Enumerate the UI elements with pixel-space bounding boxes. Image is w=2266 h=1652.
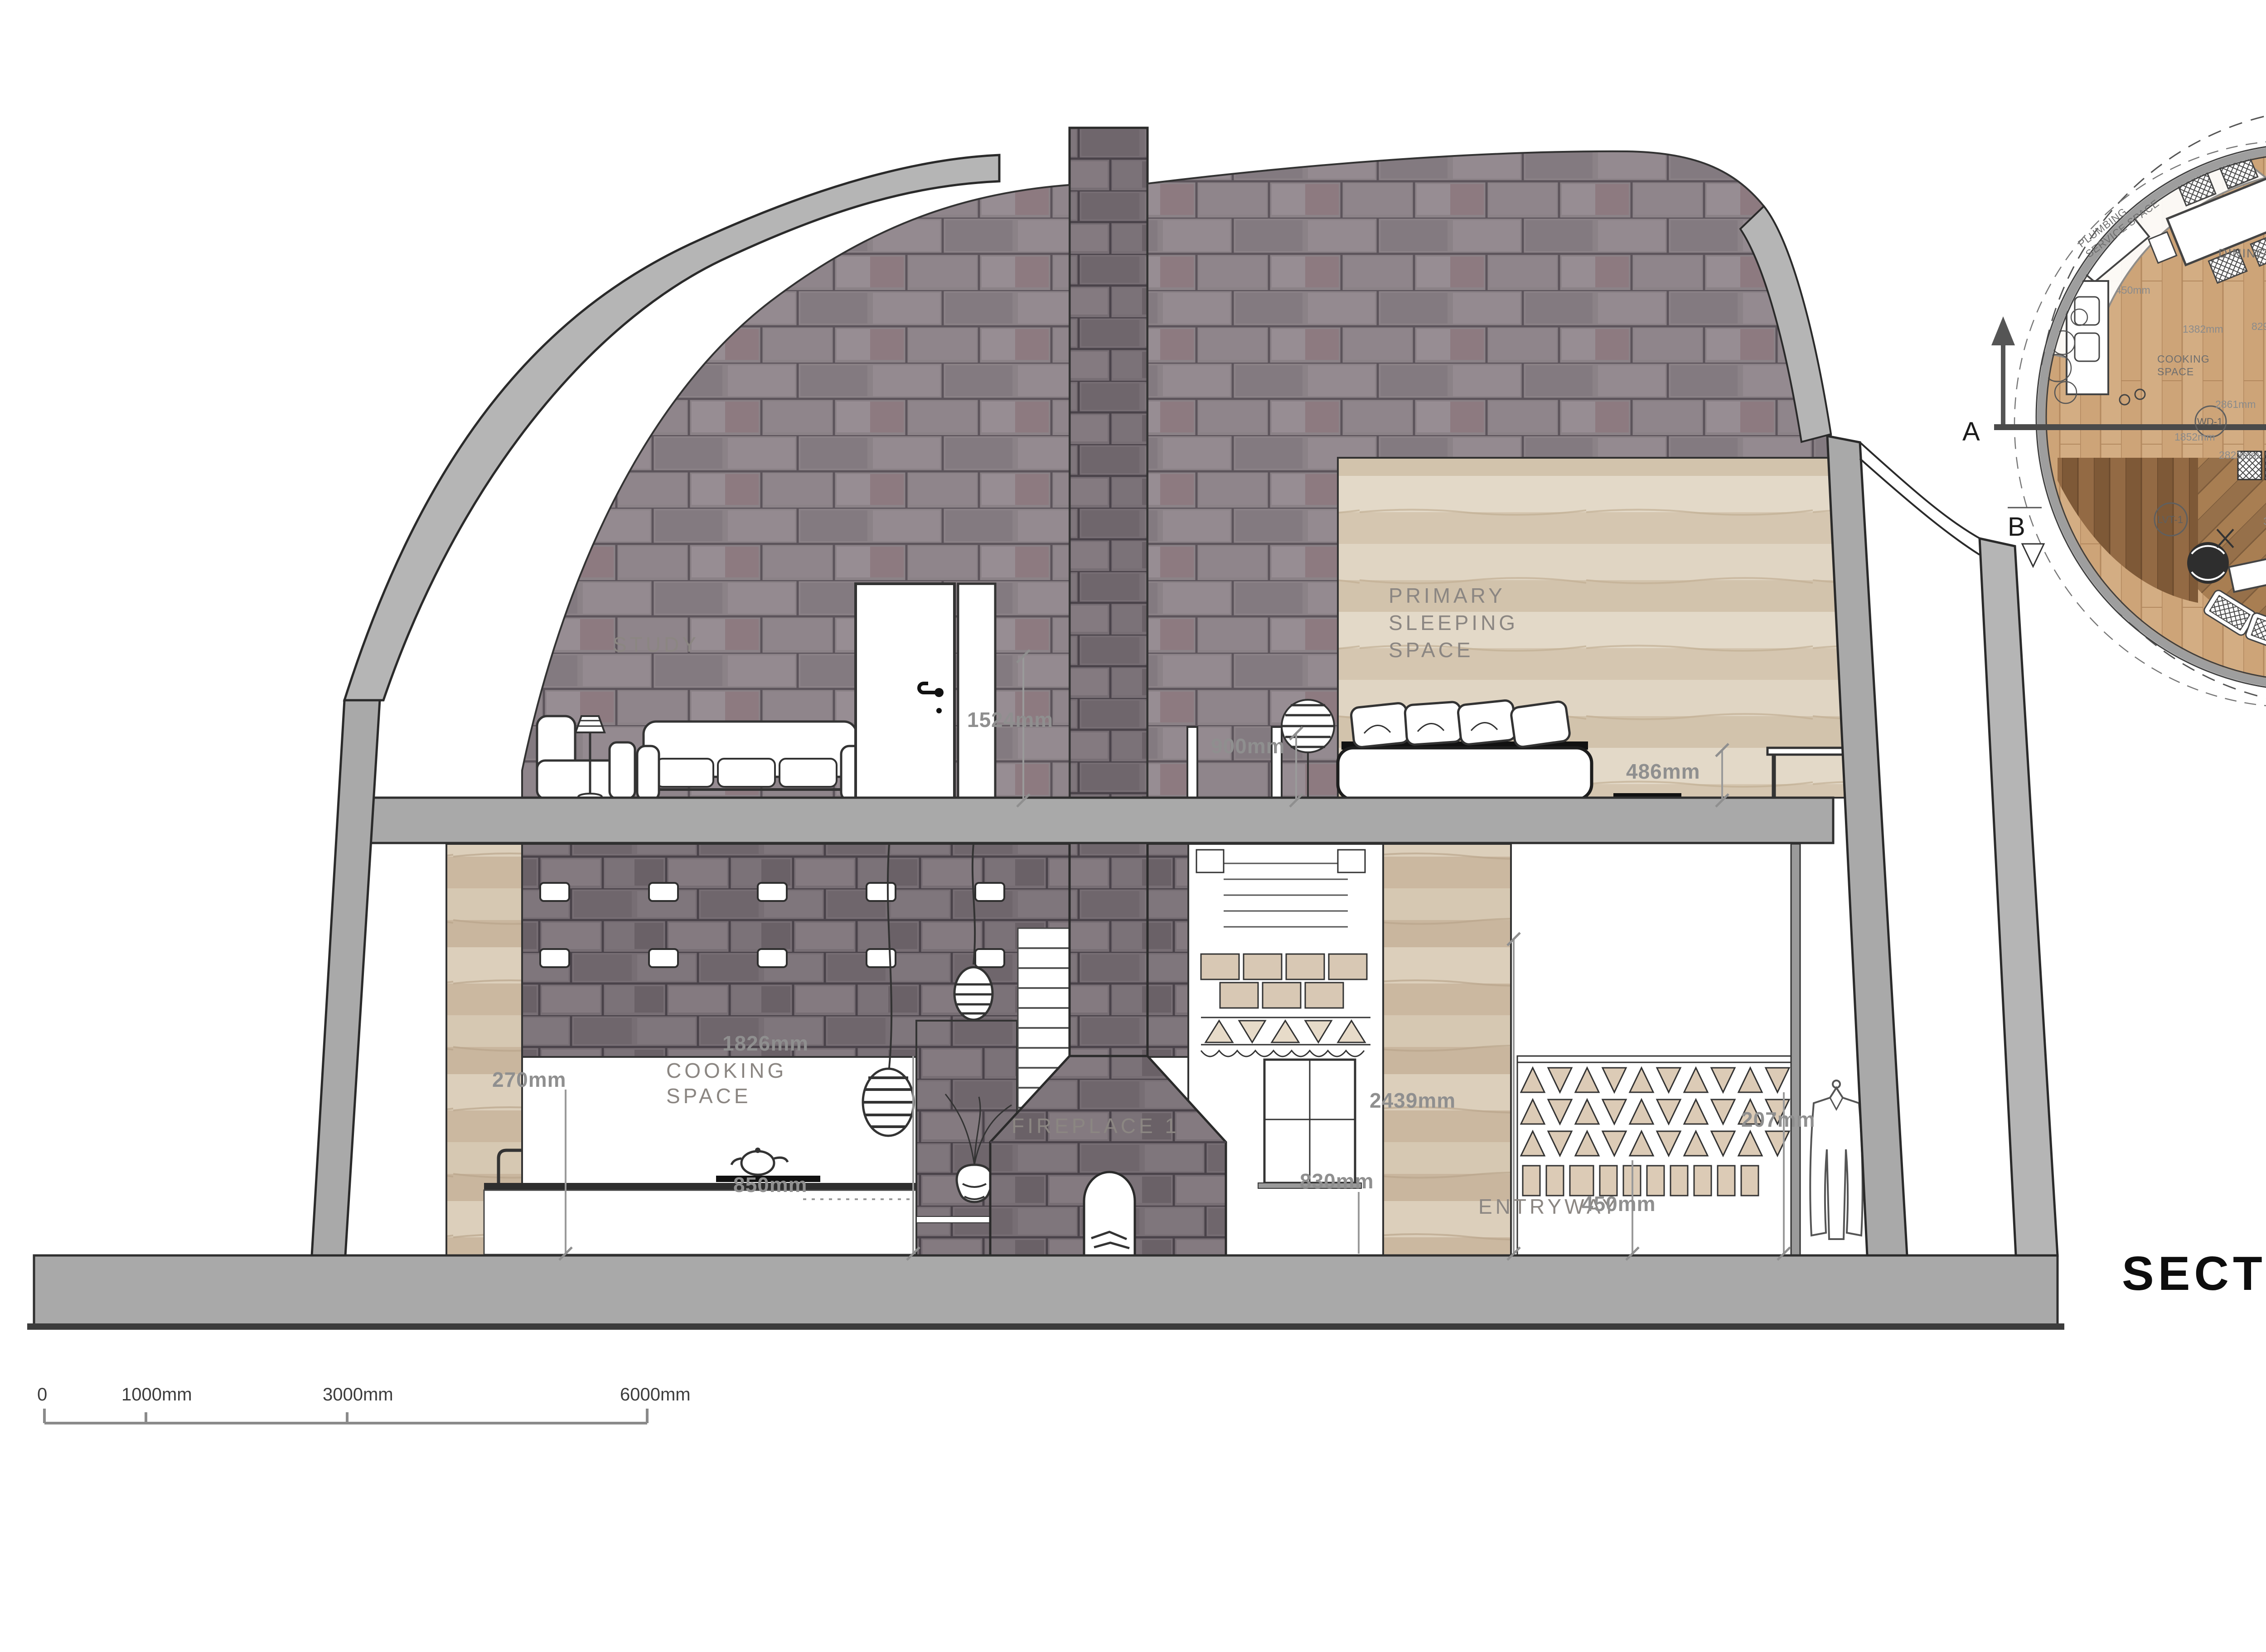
plan-interior: [2035, 135, 2266, 689]
sheet-title: SECTION: [2122, 1247, 2266, 1300]
blueprint-canvas: STUDY PRIMARY SLEEPING SPACE COOKING SPA…: [0, 0, 2266, 1652]
study-partition-wall: [958, 584, 995, 799]
scale-6000: 6000mm: [620, 1385, 691, 1405]
pdim-829: 829mm: [2251, 320, 2266, 332]
pdim-2823: 2823mm: [2219, 449, 2259, 461]
screen-slats: [1523, 1166, 1758, 1196]
plan-marker-b: B: [2008, 512, 2025, 542]
pdim-3443: 3443mm: [2263, 515, 2266, 527]
entry-roof-curve: [1860, 442, 1981, 555]
plan-marker-a: A: [1962, 417, 1980, 446]
plan-dining-label: DINING SPACE: [2218, 247, 2266, 260]
scale-3000: 3000mm: [323, 1385, 393, 1405]
study-sofa: [637, 722, 863, 800]
plan-cooking-label-line1: COOKING: [2157, 353, 2210, 365]
primary-sleeping-label-line3: SPACE: [1389, 638, 1474, 662]
dim-207: 207mm: [1741, 1108, 1816, 1131]
entry-closet-wall: [1791, 844, 1800, 1255]
section-scale-bar: 0 1000mm 3000mm 6000mm: [37, 1385, 691, 1423]
dim-850: 850mm: [733, 1173, 808, 1197]
dim-486: 486mm: [1626, 760, 1700, 783]
right-outer-wall: [1980, 538, 2058, 1255]
pdim-1382: 1382mm: [2183, 323, 2223, 335]
dim-900: 900mm: [1211, 734, 1285, 758]
cooking-label-line1: COOKING: [666, 1059, 787, 1082]
primary-sleeping-label-line2: SLEEPING: [1389, 611, 1518, 635]
dim-450: 450mm: [1582, 1192, 1656, 1216]
architectural-sheet: STUDY PRIMARY SLEEPING SPACE COOKING SPA…: [0, 0, 2266, 1652]
pdim-1852: 1852mm: [2174, 431, 2215, 443]
stair-rail-post: [1187, 727, 1197, 799]
chimney: [1070, 128, 1148, 1056]
coat-icon: [1810, 1080, 1862, 1239]
dim-1524: 1524mm: [967, 708, 1053, 732]
dim-270: 270mm: [492, 1068, 566, 1091]
rammed-earth-wall: [1383, 844, 1511, 1255]
dim-2439: 2439mm: [1370, 1089, 1456, 1112]
section-drawing: STUDY PRIMARY SLEEPING SPACE COOKING SPA…: [27, 128, 2266, 1423]
plan-drum-icon: [2187, 542, 2229, 584]
study-door: [856, 584, 954, 799]
pdim-450: 450mm: [2116, 284, 2150, 296]
primary-sleeping-label-line1: PRIMARY: [1389, 584, 1506, 607]
study-label: STUDY: [613, 633, 699, 656]
pdim-2861: 2861mm: [2215, 398, 2256, 410]
ground-slab: [34, 1255, 2058, 1326]
triangle-screen-wall: [1517, 1056, 1793, 1255]
dim-830: 830mm: [1300, 1169, 1374, 1193]
scale-0: 0: [37, 1385, 47, 1405]
scale-1000: 1000mm: [121, 1385, 192, 1405]
bed: [1338, 700, 1592, 799]
tag-wd1: WD-1: [2197, 416, 2222, 427]
teapot-icon: [731, 1148, 788, 1175]
left-outer-wall: [312, 700, 380, 1255]
tag-lvt1: LVT-1: [2157, 514, 2183, 525]
cooking-label-line2: SPACE: [666, 1084, 751, 1108]
plan-cooking-label-line2: SPACE: [2157, 366, 2194, 378]
second-floor-slab: [342, 798, 1833, 843]
fireplace-label: FIREPLACE 1: [1012, 1114, 1180, 1138]
dim-1826: 1826mm: [722, 1032, 809, 1055]
ground-line: [27, 1323, 2064, 1330]
